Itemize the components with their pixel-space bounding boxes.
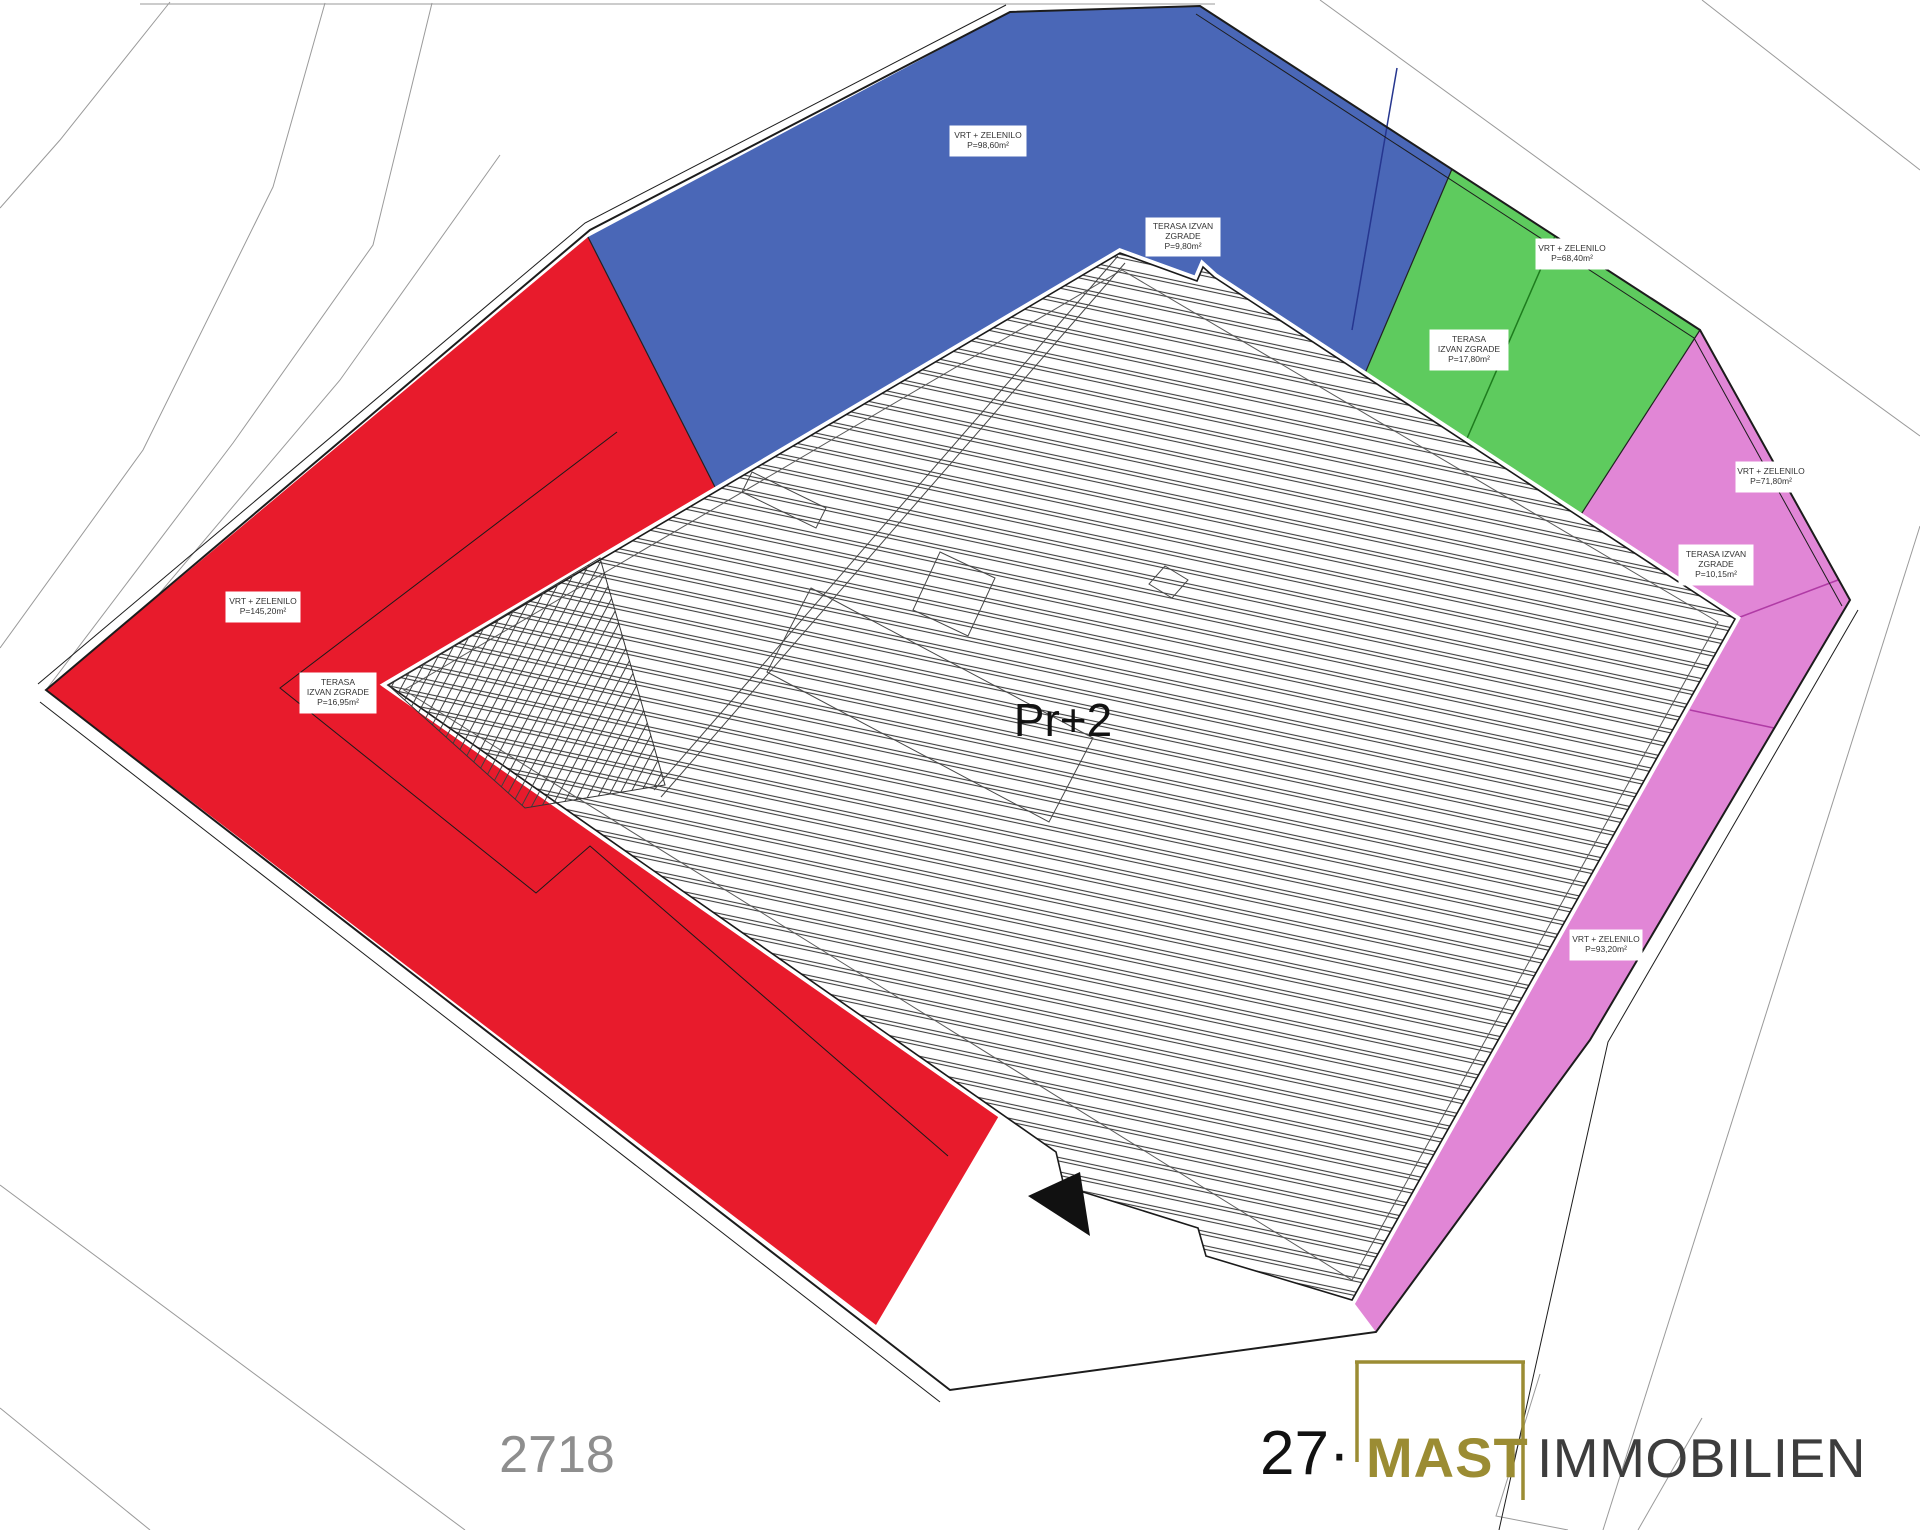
mast-immobilien-logo: 27· MAST IMMOBILIEN bbox=[1260, 1362, 1866, 1500]
label-pink-garden-lower: VRT + ZELENILO P=93,20m² bbox=[1570, 930, 1642, 960]
label-blue-garden: VRT + ZELENILO P=98,60m² bbox=[950, 126, 1026, 156]
label-red-garden: VRT + ZELENILO P=145,20m² bbox=[226, 592, 300, 622]
label-green-terrace: TERASA IZVAN ZGRADE P=17,80m² bbox=[1430, 330, 1508, 370]
svg-text:TERASA IZVAN: TERASA IZVAN bbox=[1686, 549, 1746, 559]
svg-text:P=93,20m²: P=93,20m² bbox=[1585, 944, 1627, 954]
svg-text:TERASA: TERASA bbox=[321, 677, 355, 687]
svg-text:P=17,80m²: P=17,80m² bbox=[1448, 354, 1490, 364]
floor-label: Pr+2 bbox=[1014, 694, 1112, 746]
svg-text:VRT + ZELENILO: VRT + ZELENILO bbox=[1737, 466, 1805, 476]
site-plan-svg: VRT + ZELENILO P=98,60m² TERASA IZVAN ZG… bbox=[0, 0, 1920, 1530]
svg-text:IZVAN ZGRADE: IZVAN ZGRADE bbox=[307, 687, 370, 697]
logo-suffix-text: IMMOBILIEN bbox=[1537, 1427, 1866, 1489]
label-blue-terrace: TERASA IZVAN ZGRADE P=9,80m² bbox=[1146, 218, 1220, 256]
svg-text:IZVAN ZGRADE: IZVAN ZGRADE bbox=[1438, 344, 1501, 354]
svg-text:P=9,80m²: P=9,80m² bbox=[1164, 241, 1201, 251]
label-green-garden: VRT + ZELENILO P=68,40m² bbox=[1536, 239, 1608, 269]
svg-text:ZGRADE: ZGRADE bbox=[1698, 559, 1734, 569]
svg-text:P=71,80m²: P=71,80m² bbox=[1750, 476, 1792, 486]
label-red-terrace: TERASA IZVAN ZGRADE P=16,95m² bbox=[300, 673, 376, 713]
label-pink-garden-upper: VRT + ZELENILO P=71,80m² bbox=[1736, 462, 1806, 492]
svg-text:TERASA IZVAN: TERASA IZVAN bbox=[1153, 221, 1213, 231]
svg-text:P=98,60m²: P=98,60m² bbox=[967, 140, 1009, 150]
svg-text:VRT + ZELENILO: VRT + ZELENILO bbox=[229, 596, 297, 606]
svg-text:P=10,15m²: P=10,15m² bbox=[1695, 569, 1737, 579]
label-pink-terrace: TERASA IZVAN ZGRADE P=10,15m² bbox=[1679, 545, 1753, 585]
svg-text:ZGRADE: ZGRADE bbox=[1165, 231, 1201, 241]
svg-text:VRT + ZELENILO: VRT + ZELENILO bbox=[1572, 934, 1640, 944]
parcel-number: 2718 bbox=[499, 1426, 615, 1484]
svg-text:P=16,95m²: P=16,95m² bbox=[317, 697, 359, 707]
svg-text:VRT + ZELENILO: VRT + ZELENILO bbox=[954, 130, 1022, 140]
site-plan-page: VRT + ZELENILO P=98,60m² TERASA IZVAN ZG… bbox=[0, 0, 1920, 1530]
logo-prefix-number: 27· bbox=[1260, 1419, 1350, 1488]
svg-text:VRT + ZELENILO: VRT + ZELENILO bbox=[1538, 243, 1606, 253]
svg-text:P=145,20m²: P=145,20m² bbox=[240, 606, 287, 616]
svg-text:P=68,40m²: P=68,40m² bbox=[1551, 253, 1593, 263]
logo-brand-text: MAST bbox=[1366, 1426, 1529, 1489]
svg-text:TERASA: TERASA bbox=[1452, 334, 1486, 344]
